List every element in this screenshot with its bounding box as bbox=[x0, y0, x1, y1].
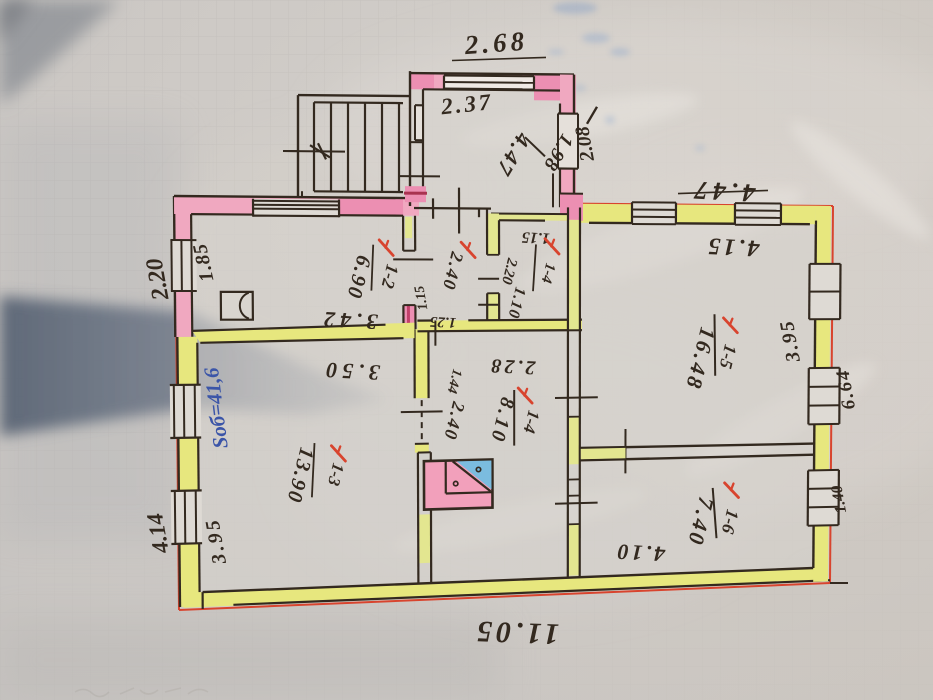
svg-text:1.25: 1.25 bbox=[429, 313, 457, 330]
svg-text:1.15: 1.15 bbox=[521, 228, 550, 246]
svg-text:4.10: 4.10 bbox=[614, 539, 667, 567]
svg-text:2.28: 2.28 bbox=[488, 354, 537, 378]
svg-text:3.42: 3.42 bbox=[318, 307, 379, 335]
svg-text:11.05: 11.05 bbox=[473, 615, 560, 651]
svg-text:2.68: 2.68 bbox=[463, 26, 529, 60]
svg-text:3.50: 3.50 bbox=[321, 357, 382, 385]
svg-text:4.15: 4.15 bbox=[705, 232, 761, 261]
